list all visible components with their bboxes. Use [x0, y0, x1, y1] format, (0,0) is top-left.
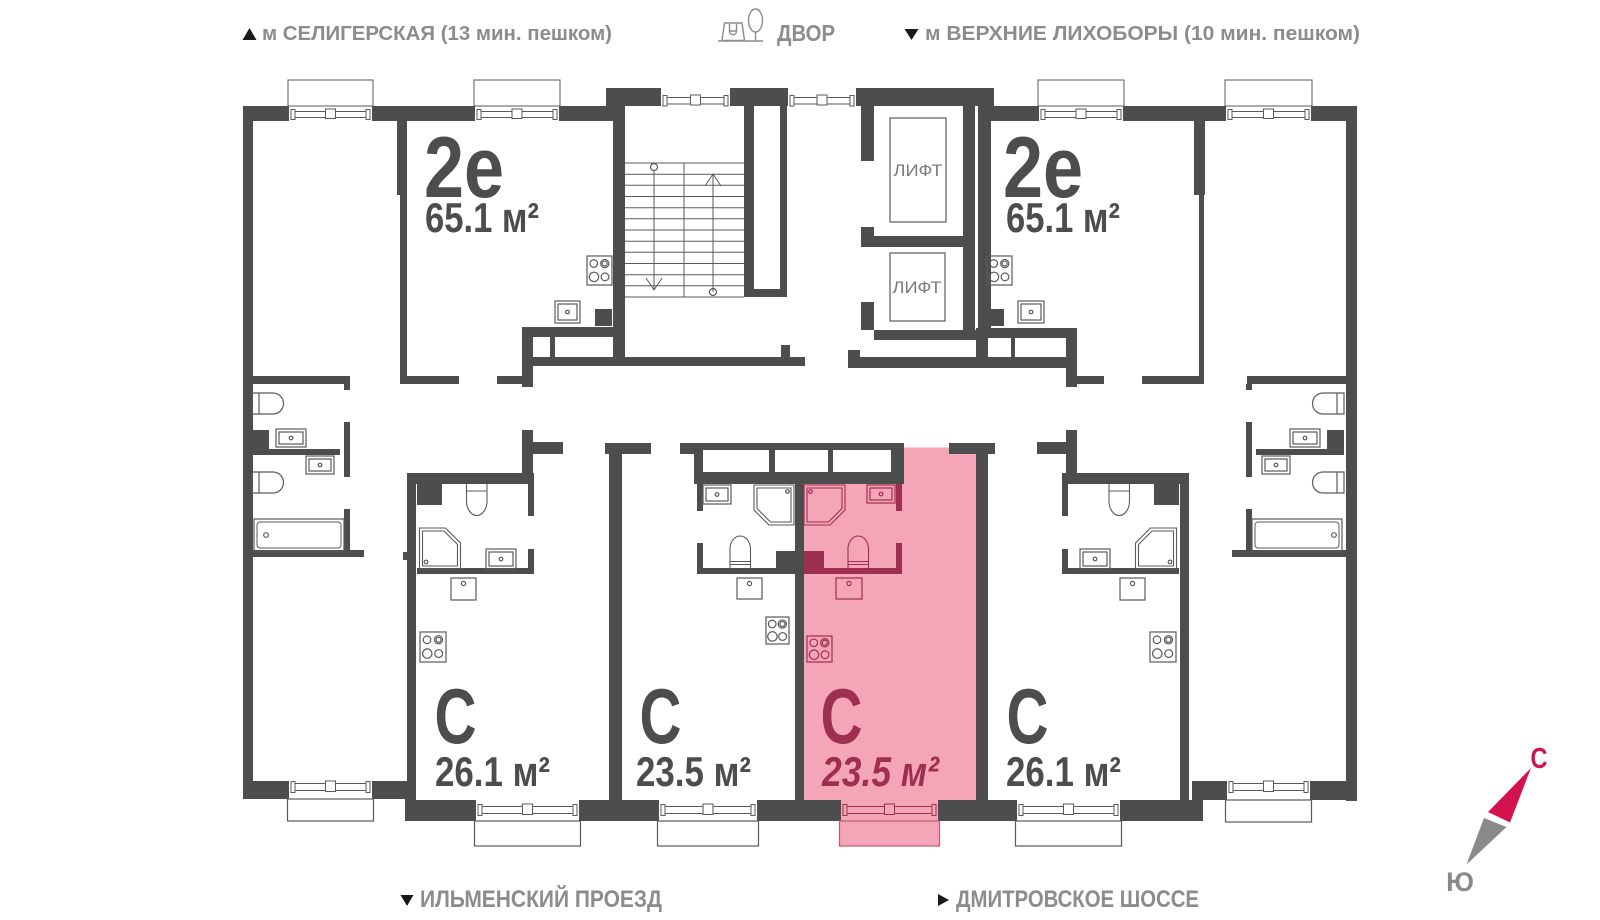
svg-text:ДМИТРОВСКОЕ ШОССЕ: ДМИТРОВСКОЕ ШОССЕ — [956, 886, 1199, 913]
svg-text:м СЕЛИГЕРСКАЯ (13 мин. пешком): м СЕЛИГЕРСКАЯ (13 мин. пешком) — [262, 23, 612, 45]
svg-text:С: С — [640, 672, 682, 760]
svg-text:С: С — [435, 672, 477, 760]
svg-text:65.1 м²: 65.1 м² — [1006, 194, 1120, 241]
svg-text:ИЛЬМЕНСКИЙ ПРОЕЗД: ИЛЬМЕНСКИЙ ПРОЕЗД — [420, 885, 662, 913]
svg-text:ДВОР: ДВОР — [777, 20, 835, 46]
svg-text:С: С — [1531, 743, 1548, 775]
svg-text:23.5 м²: 23.5 м² — [636, 748, 751, 795]
svg-text:Ю: Ю — [1446, 867, 1474, 897]
svg-text:26.1 м²: 26.1 м² — [1006, 748, 1121, 795]
svg-text:ЛИФТ: ЛИФТ — [894, 161, 943, 180]
svg-text:23.5 м²: 23.5 м² — [821, 748, 940, 795]
svg-text:С: С — [821, 672, 863, 760]
svg-text:65.1 м²: 65.1 м² — [425, 194, 539, 241]
svg-text:С: С — [1007, 672, 1049, 760]
svg-text:ЛИФТ: ЛИФТ — [893, 278, 942, 297]
svg-text:м ВЕРХНИЕ ЛИХОБОРЫ (10 мин. пе: м ВЕРХНИЕ ЛИХОБОРЫ (10 мин. пешком) — [925, 23, 1360, 45]
svg-text:26.1 м²: 26.1 м² — [435, 748, 550, 795]
